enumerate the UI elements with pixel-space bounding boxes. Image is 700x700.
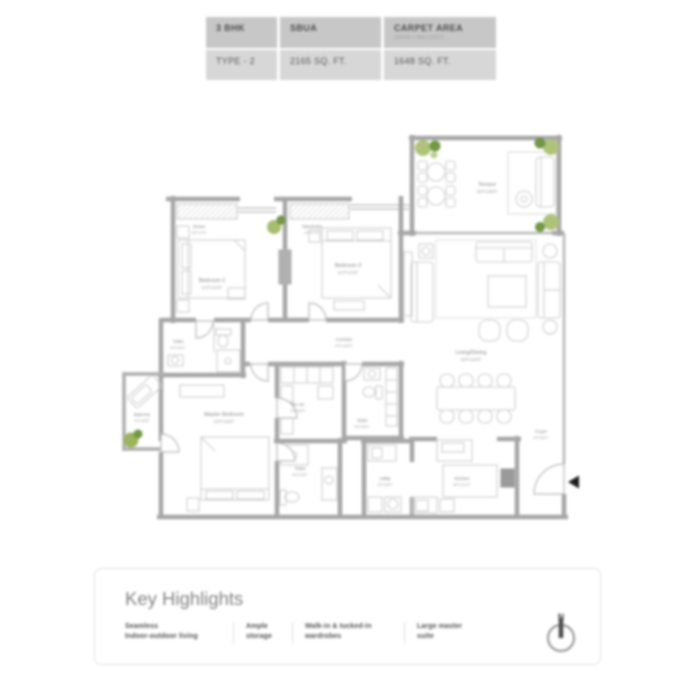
- svg-text:5'0"x6'0": 5'0"x6'0": [533, 435, 549, 440]
- svg-text:Utility: Utility: [379, 476, 391, 481]
- svg-text:16'0"x29'0": 16'0"x29'0": [476, 189, 498, 194]
- svg-text:11'0"x12'6": 11'0"x12'6": [202, 285, 223, 290]
- svg-text:4'6"x7'0": 4'6"x7'0": [191, 230, 207, 235]
- svg-text:4'0"x18'0": 4'0"x18'0": [335, 343, 353, 348]
- svg-text:W.I.W: W.I.W: [292, 402, 305, 407]
- svg-text:14'0"x16'0": 14'0"x16'0": [213, 419, 235, 424]
- svg-text:Wardrobe: Wardrobe: [302, 224, 322, 229]
- svg-text:Kitchen: Kitchen: [454, 476, 470, 481]
- svg-text:8'0"x9'6": 8'0"x9'6": [292, 472, 308, 477]
- svg-text:Dress: Dress: [193, 224, 206, 229]
- svg-text:Living/Dining: Living/Dining: [456, 350, 487, 356]
- svg-text:8'0"x12'0": 8'0"x12'0": [453, 482, 471, 487]
- svg-text:Terrace: Terrace: [478, 182, 496, 188]
- svg-text:5'0"x8'0": 5'0"x8'0": [170, 345, 186, 350]
- svg-text:Corridor: Corridor: [336, 337, 353, 342]
- svg-text:5'6"x8'0": 5'6"x8'0": [290, 408, 306, 413]
- svg-text:Toilet: Toilet: [357, 418, 368, 423]
- svg-text:Balcony: Balcony: [134, 412, 151, 417]
- svg-text:Master Bedroom: Master Bedroom: [204, 412, 244, 418]
- svg-text:Bedroom 3: Bedroom 3: [335, 263, 361, 269]
- svg-text:Bedroom 2: Bedroom 2: [199, 278, 225, 284]
- svg-text:Toilet: Toilet: [295, 466, 306, 471]
- svg-text:4'0"x8'0": 4'0"x8'0": [377, 482, 393, 487]
- svg-text:11'0"x13'6": 11'0"x13'6": [338, 270, 359, 275]
- svg-text:Toilet: Toilet: [173, 339, 184, 344]
- svg-text:5'0"x8'0": 5'0"x8'0": [354, 424, 370, 429]
- svg-text:Foyer: Foyer: [535, 429, 547, 434]
- svg-text:16'0"x23'0": 16'0"x23'0": [460, 357, 482, 362]
- svg-text:5'0"x8'6": 5'0"x8'6": [134, 418, 150, 423]
- svg-text:4'0"x7'0": 4'0"x7'0": [304, 230, 320, 235]
